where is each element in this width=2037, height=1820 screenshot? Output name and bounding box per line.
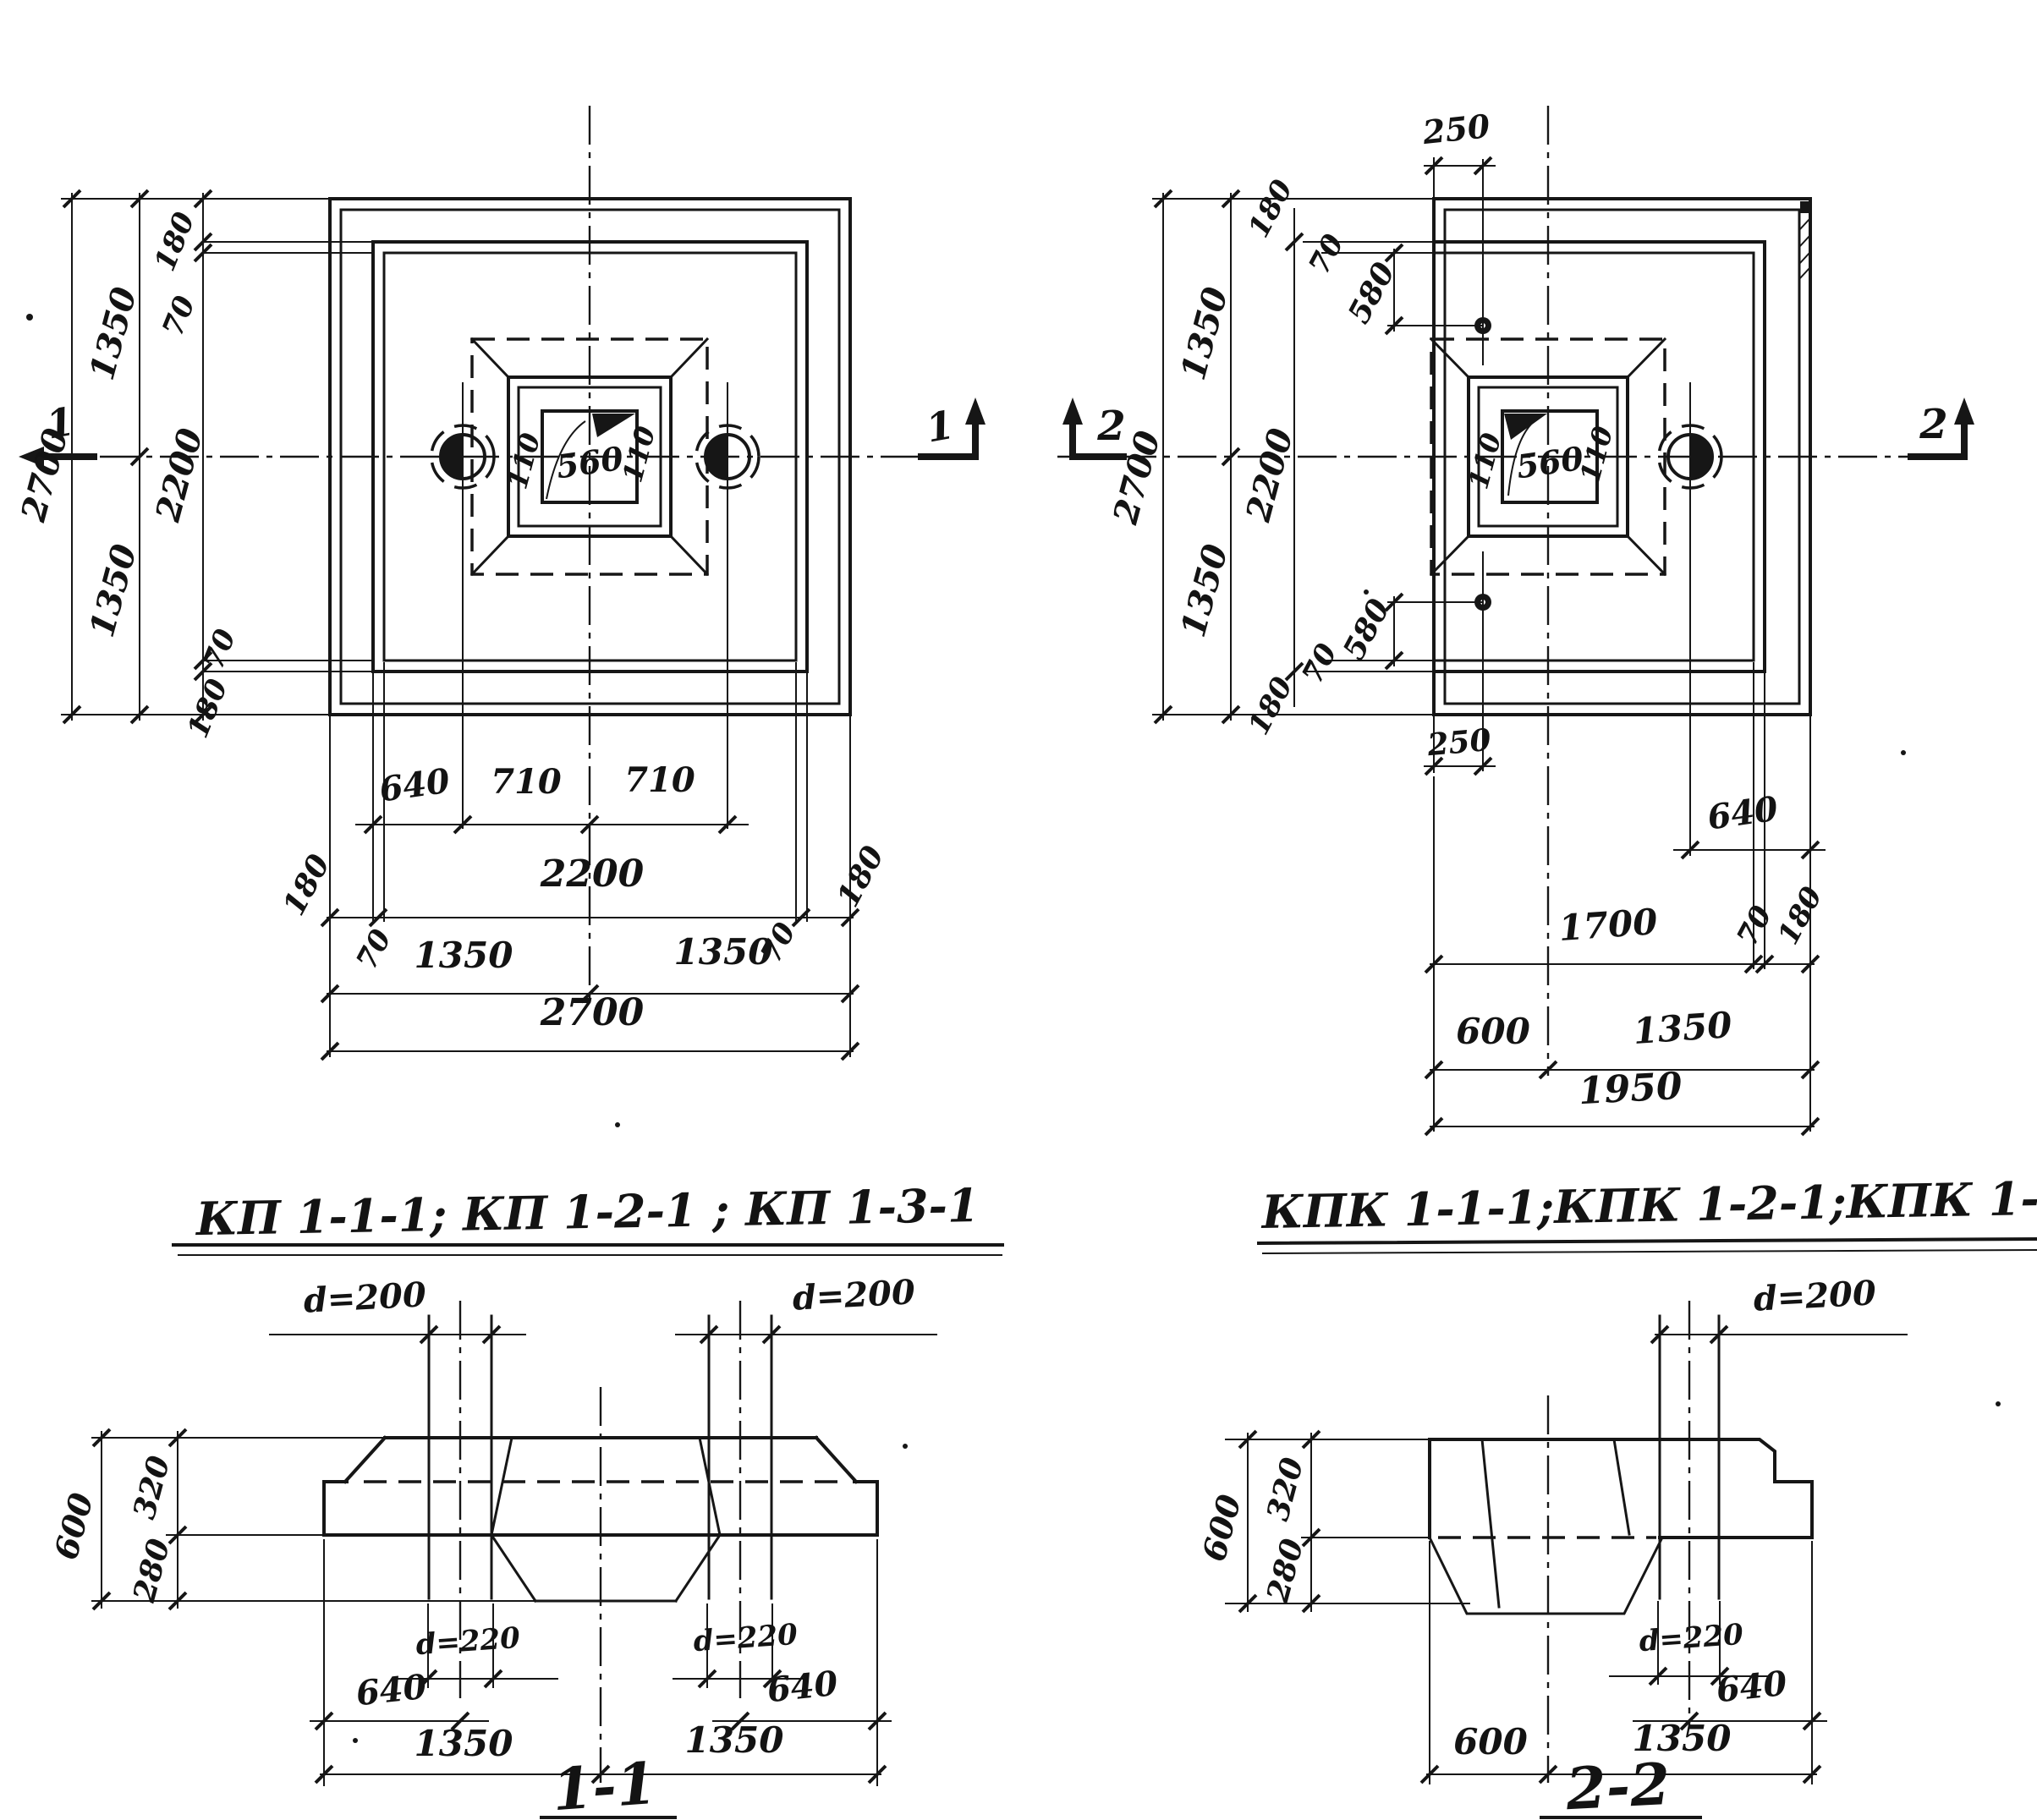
dim-label: d=220 — [1638, 1618, 1744, 1659]
plan-left-dims-bottom: 640 710 710 180 2200 180 70 70 1350 1350… — [276, 662, 891, 1060]
dim-label: 580 — [1341, 256, 1402, 329]
dim-label: 2200 — [540, 852, 645, 896]
dim-label: 600 — [1194, 1490, 1249, 1565]
drawing-title-right: КПК 1-1-1;КПК 1-2-1;КПК 1-3-1 — [1260, 1170, 2037, 1239]
dim-label: 320 — [1260, 1454, 1310, 1524]
dim-label: 280 — [126, 1535, 177, 1606]
plan-right-bottom-leaders: 580 70 180 250 — [1242, 593, 1496, 775]
title-left: КП 1-1-1; КП 1-2-1 ; КП 1-3-1 — [173, 1178, 1002, 1255]
section-2-2: d=200 600 320 280 d=220 — [1194, 1273, 1908, 1820]
dim-label: 560 — [554, 439, 626, 486]
dim-label: 640 — [766, 1664, 840, 1710]
foundation-drawing: 1 1 2700 1350 1350 2200 180 70 70 — [0, 0, 2037, 1820]
section-arrow-icon — [1954, 397, 1974, 425]
dim-label: 2700 — [14, 424, 77, 526]
dim-label: 180 — [181, 674, 235, 743]
dim-label: 640 — [354, 1667, 429, 1713]
dim-label: d=200 — [303, 1275, 427, 1321]
dim-label: 1950 — [1578, 1065, 1683, 1113]
section-mark-2-right: 2 — [1908, 397, 1974, 460]
drawing-sheet: 1 1 2700 1350 1350 2200 180 70 70 — [0, 0, 2037, 1820]
dim-label: 1350 — [415, 1723, 513, 1764]
dim-label: 250 — [1420, 107, 1492, 151]
dim-label: 1350 — [1173, 282, 1236, 384]
dim-label: 710 — [491, 762, 562, 802]
plan-right-dim-250-top: 250 — [1420, 107, 1496, 197]
dim-label: 1350 — [1632, 1004, 1733, 1052]
section-2-dims-bottom: 640 600 1350 — [1421, 1395, 1827, 1784]
section-arrow-icon — [965, 397, 986, 425]
opening-flag — [1504, 414, 1547, 440]
dim-label: 70 — [1731, 900, 1780, 951]
dim-label: d=220 — [415, 1621, 521, 1663]
dim-label: 640 — [1715, 1664, 1789, 1710]
title-right: КПК 1-1-1;КПК 1-2-1;КПК 1-3-1 — [1259, 1170, 2037, 1253]
dim-label: 2200 — [148, 424, 211, 526]
section-mark-2-left: 2 — [1062, 397, 1127, 460]
dim-label: 600 — [1456, 1011, 1530, 1052]
dim-label: 280 — [1260, 1535, 1310, 1606]
drawing-title-left: КП 1-1-1; КП 1-2-1 ; КП 1-3-1 — [194, 1178, 980, 1246]
section-arrow-icon — [1062, 397, 1083, 425]
dim-label: 250 — [1425, 722, 1493, 763]
section-1-dims-bottom: 640 640 1350 1350 — [310, 1387, 892, 1786]
section-1-dims-left: 600 320 280 — [47, 1429, 538, 1609]
section-marker-label: 2 — [1096, 403, 1125, 450]
dim-label: 320 — [126, 1452, 177, 1522]
dim-label: 600 — [1453, 1721, 1528, 1762]
dim-label: 640 — [1705, 789, 1781, 838]
section-marker-label: 1 — [923, 402, 958, 452]
section-2-body — [1430, 1439, 1812, 1614]
section-marker-label: 2 — [1919, 401, 1947, 448]
dim-label: 110 — [616, 423, 662, 485]
dim-label: d=200 — [1753, 1273, 1877, 1319]
section-1-1: d=200 d=200 600 320 280 d=220 d=220 — [47, 1272, 937, 1820]
dim-label: 1350 — [685, 1719, 784, 1761]
section-title: 1-1 — [550, 1750, 658, 1820]
dim-label: 180 — [1242, 174, 1300, 244]
dim-label: 180 — [1771, 881, 1830, 951]
dim-label: 180 — [148, 207, 202, 276]
dim-label: 1350 — [82, 540, 145, 641]
dim-label: 2700 — [540, 991, 645, 1034]
dim-label: 710 — [624, 760, 695, 800]
section-title: 2-2 — [1563, 1751, 1672, 1820]
dim-label: 70 — [350, 924, 399, 975]
dim-label: 110 — [1573, 423, 1619, 485]
plan-right: 2 2 250 180 70 580 — [1057, 106, 1974, 1135]
dim-label: 580 — [1336, 593, 1397, 666]
dim-label: 70 — [156, 291, 202, 341]
section-mark-1-right: 1 — [918, 397, 986, 460]
dim-label: 560 — [1514, 439, 1586, 486]
dim-label: 180 — [276, 848, 337, 921]
dim-label: 180 — [830, 840, 891, 913]
dim-label: 640 — [377, 761, 453, 810]
dim-label: 180 — [1242, 672, 1300, 741]
dim-label: 70 — [1303, 228, 1352, 280]
dim-label: d=220 — [692, 1618, 799, 1659]
dim-label: 1350 — [674, 931, 773, 973]
dim-label: 1350 — [82, 282, 145, 384]
dim-label: 2200 — [1238, 424, 1302, 526]
dim-label: 600 — [47, 1488, 101, 1564]
dim-label: 1700 — [1557, 901, 1659, 949]
dim-label: 1350 — [415, 935, 513, 976]
plan-left: 1 1 2700 1350 1350 2200 180 70 70 — [14, 106, 986, 1060]
plan-left-dims-left: 2700 1350 1350 2200 180 70 70 180 — [14, 190, 375, 743]
dim-label: d=200 — [792, 1272, 916, 1318]
dim-label: 1350 — [1173, 540, 1236, 641]
